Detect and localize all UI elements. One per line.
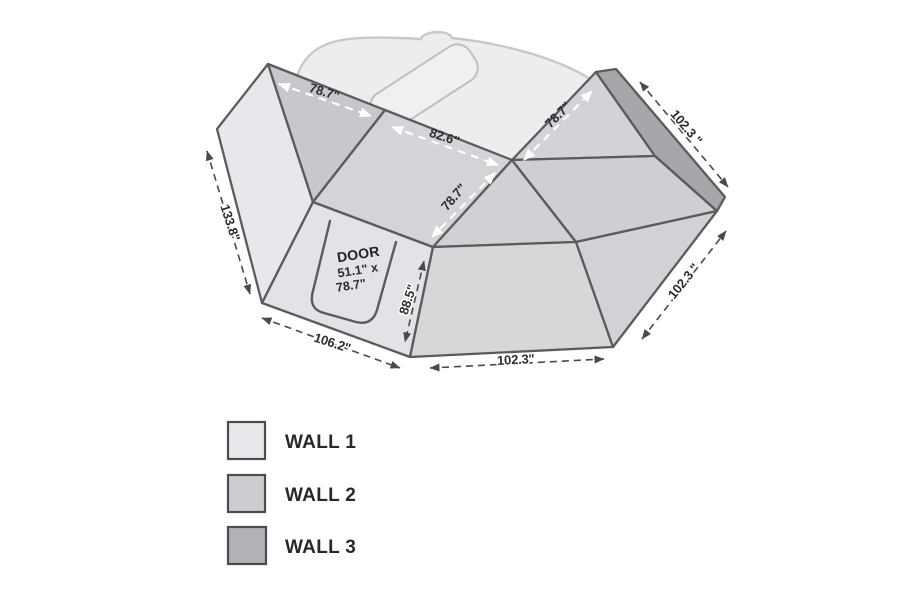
legend-label-wall-2: WALL 2 (285, 485, 356, 506)
legend-label-wall-1: WALL 1 (285, 432, 356, 453)
legend-swatch-wall-1 (228, 422, 265, 459)
legend-label-wall-3: WALL 3 (285, 537, 356, 558)
legend-swatch-wall-3 (228, 527, 266, 564)
dimension-label-bottom: 102.3" (497, 351, 535, 368)
awning-dimension-diagram: DOOR 51.1" x 78.7" 78.7" 82.6" 78.7" 78.… (0, 0, 900, 600)
legend: WALL 1 WALL 2 WALL 3 (228, 422, 356, 564)
awning-dimension-diagram-page: DOOR 51.1" x 78.7" 78.7" 82.6" 78.7" 78.… (0, 0, 900, 600)
legend-swatch-wall-2 (228, 475, 265, 512)
